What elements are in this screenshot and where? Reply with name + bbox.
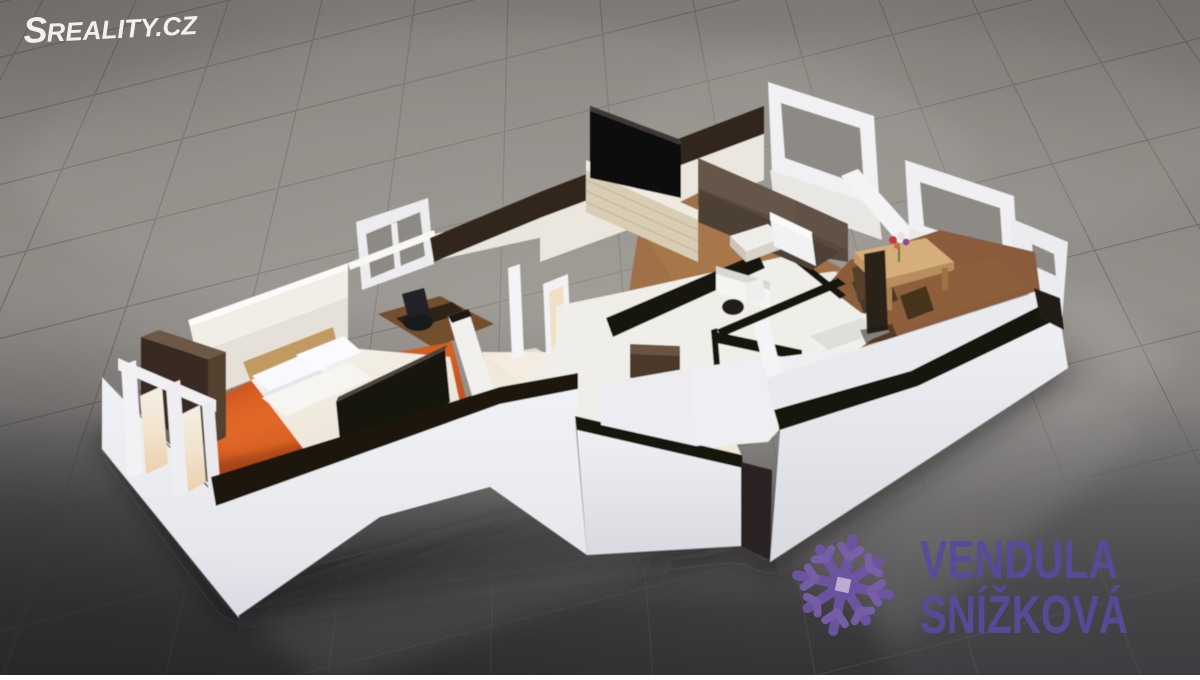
svg-text:SNÍŽKOVÁ: SNÍŽKOVÁ [920, 584, 1128, 645]
svg-text:VENDULA: VENDULA [920, 530, 1118, 590]
svg-text:S: S [22, 9, 48, 51]
